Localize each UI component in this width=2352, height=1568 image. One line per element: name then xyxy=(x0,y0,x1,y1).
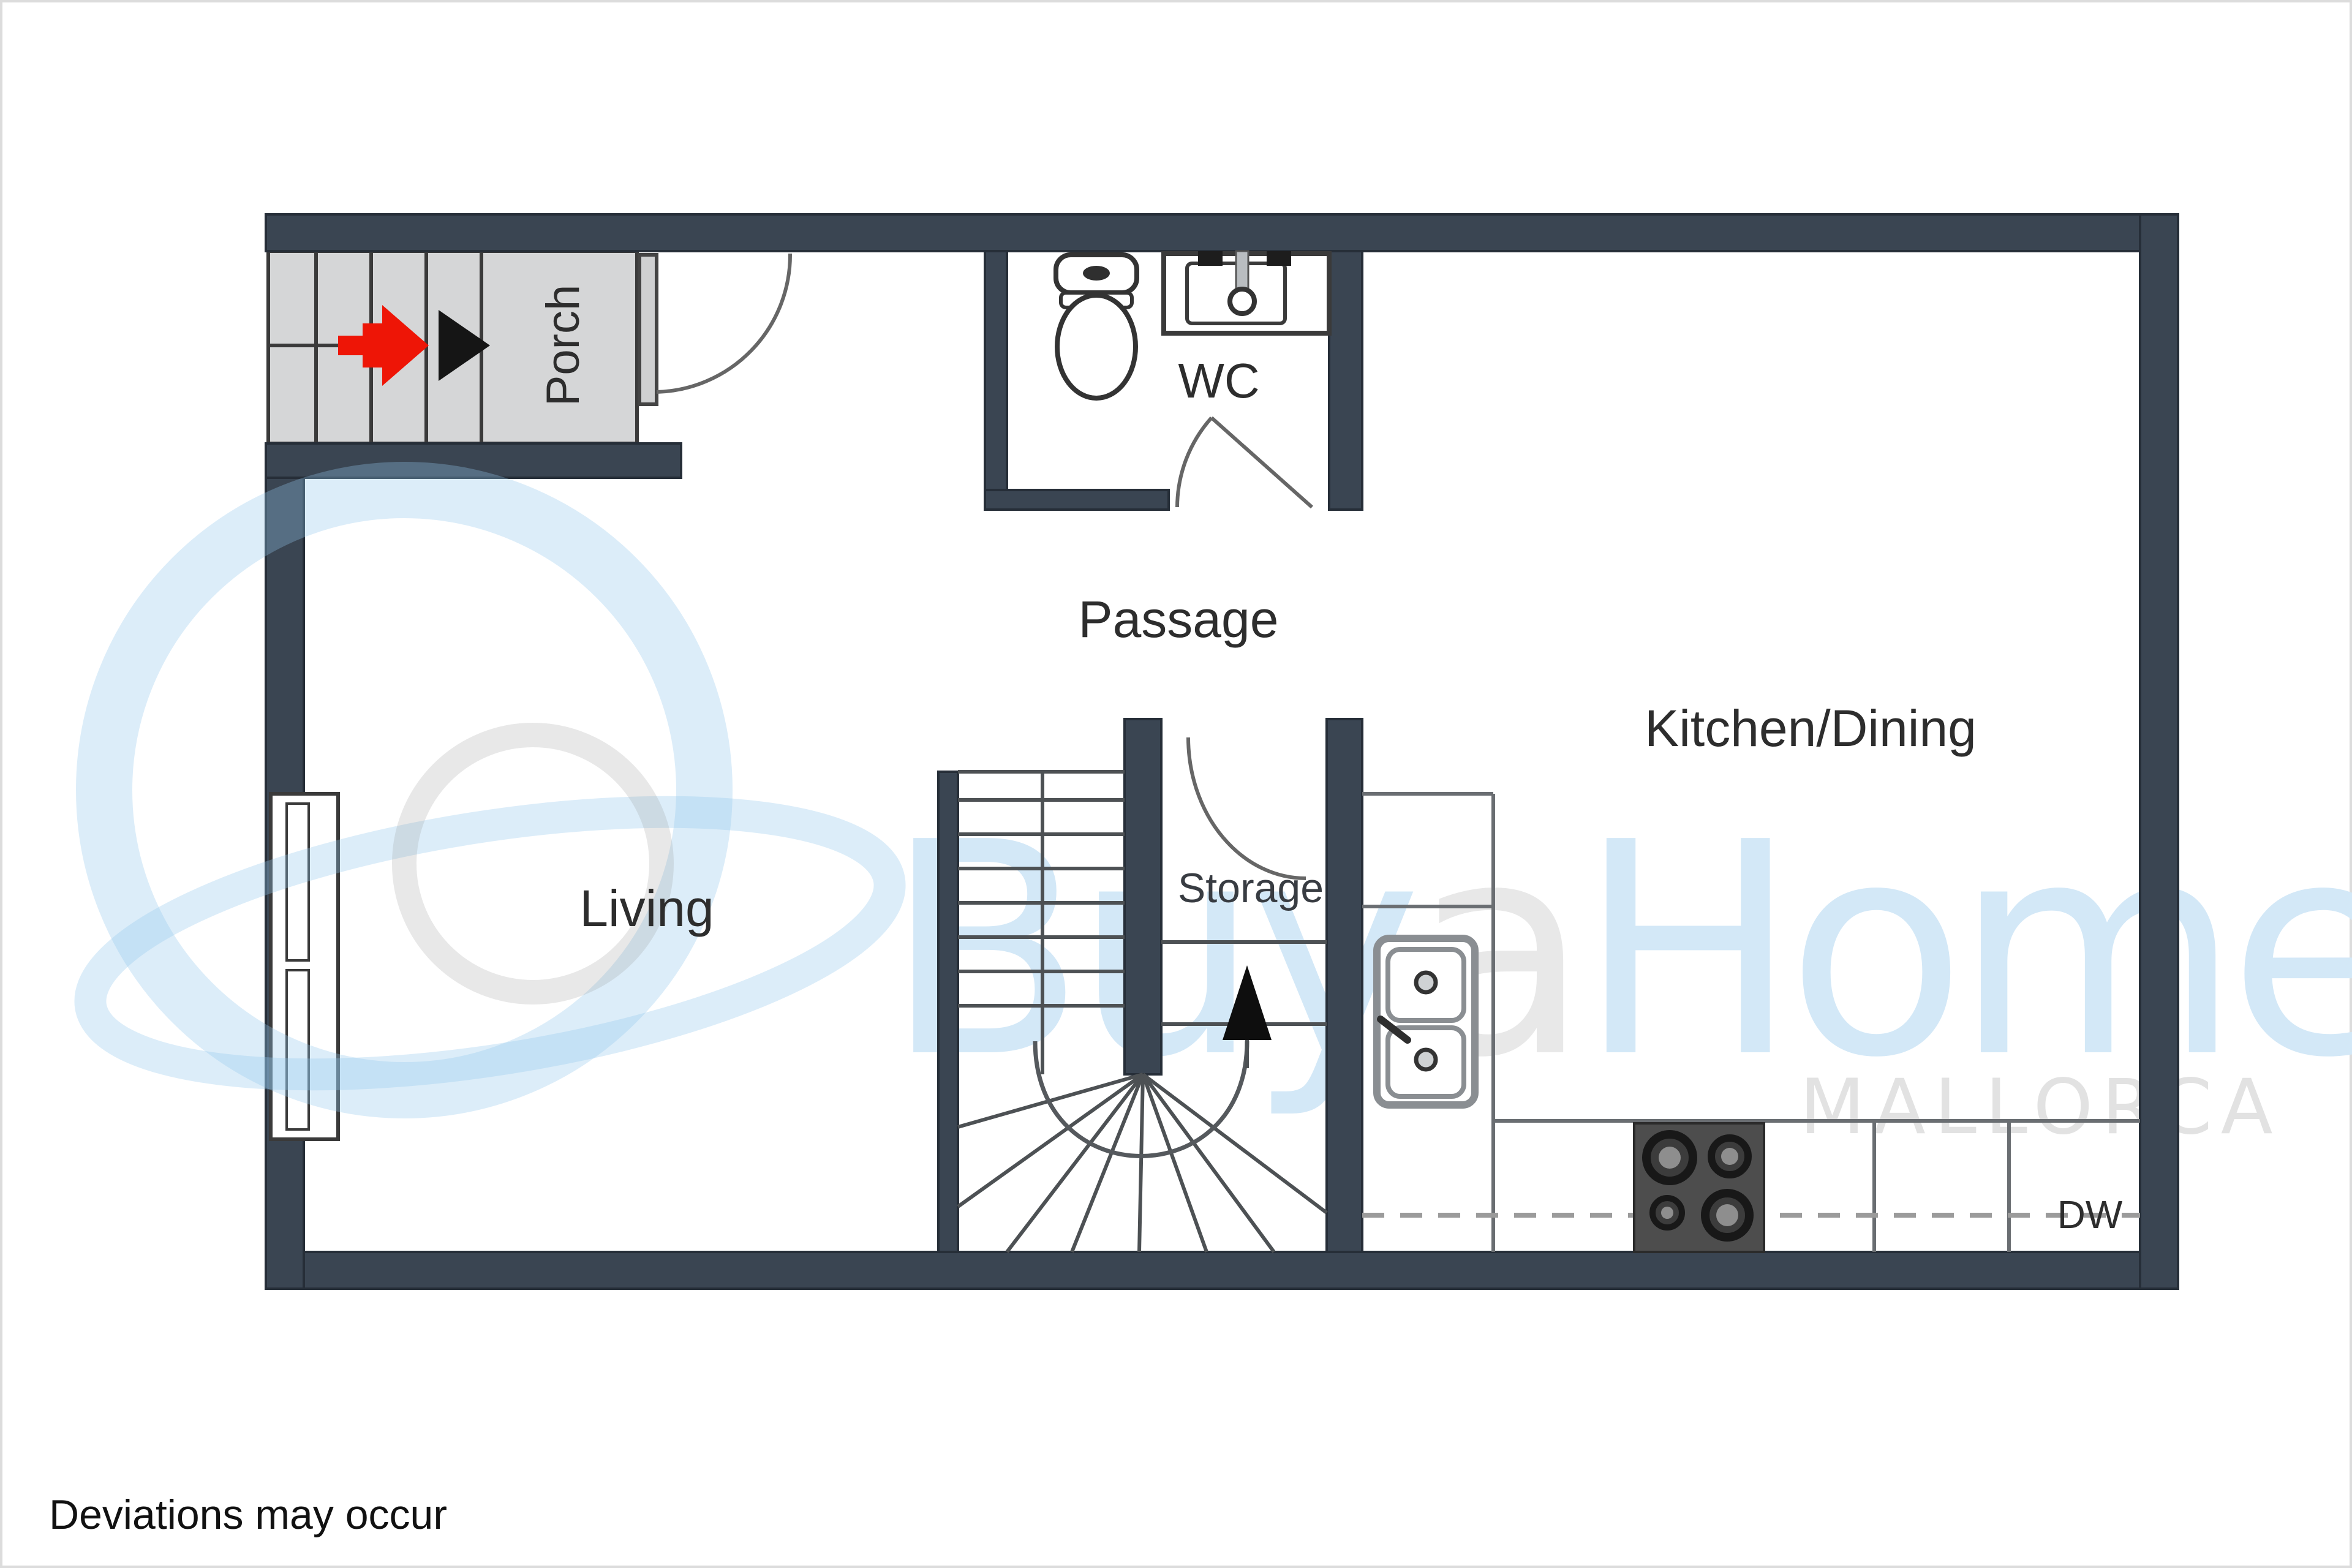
room-label-wc: WC xyxy=(1178,355,1259,410)
floor-plan-image: BuyaHome MALLORCA xyxy=(0,0,2352,1568)
room-label-kitchen-dining: Kitchen/Dining xyxy=(1645,699,1977,758)
appliance-label-dishwasher: DW xyxy=(2057,1193,2123,1238)
disclaimer-text: Deviations may occur xyxy=(49,1492,447,1540)
room-label-living: Living xyxy=(579,880,714,938)
labels-layer: Porch WC Passage Kitchen/Dining Living S… xyxy=(0,0,2352,1568)
room-label-porch: Porch xyxy=(538,285,591,407)
room-label-storage: Storage xyxy=(1178,865,1324,913)
room-label-passage: Passage xyxy=(1079,590,1279,649)
